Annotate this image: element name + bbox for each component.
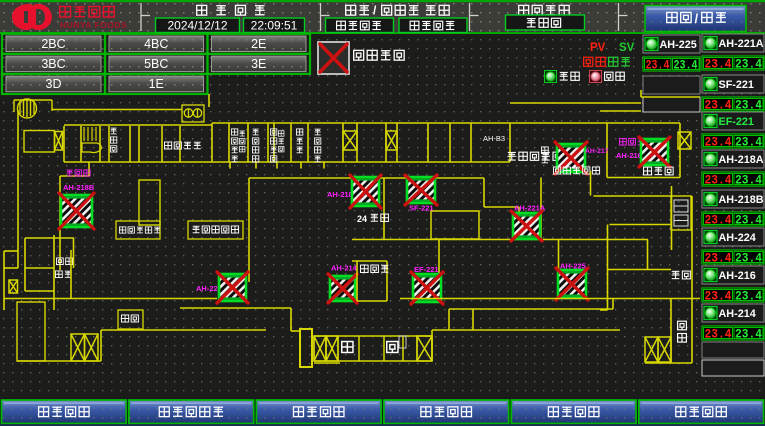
svg-text:2024/12/12: 2024/12/12: [167, 19, 227, 33]
svg-text:23.4: 23.4: [705, 136, 732, 150]
svg-text:23.4: 23.4: [735, 252, 762, 266]
svg-text:23.4: 23.4: [705, 290, 732, 304]
svg-text:23.4: 23.4: [735, 58, 762, 72]
svg-text:SV: SV: [619, 42, 635, 54]
svg-text:AH-218A: AH-218A: [719, 154, 764, 166]
svg-text:23.4: 23.4: [705, 328, 732, 342]
svg-text:4BC: 4BC: [144, 37, 168, 51]
svg-text:23.4: 23.4: [735, 328, 762, 342]
svg-text:AH-214: AH-214: [719, 308, 756, 320]
svg-text:EF-221: EF-221: [719, 116, 754, 128]
svg-text:SF-221: SF-221: [409, 204, 434, 213]
svg-text:23.4: 23.4: [705, 214, 732, 228]
svg-text:5BC: 5BC: [144, 57, 168, 71]
svg-text:23.4: 23.4: [674, 59, 698, 73]
svg-text:23.4: 23.4: [735, 174, 762, 188]
svg-text:23.4: 23.4: [735, 99, 762, 113]
svg-text:22:09:51: 22:09:51: [251, 19, 298, 33]
svg-text:23.4: 23.4: [735, 136, 762, 150]
svg-text:23.4: 23.4: [705, 174, 732, 188]
svg-text:3D: 3D: [46, 77, 62, 91]
svg-text:AH-214: AH-214: [331, 264, 358, 273]
svg-text:AH-216: AH-216: [616, 151, 642, 160]
svg-text:PV: PV: [590, 42, 606, 54]
svg-text:23.4: 23.4: [646, 59, 670, 73]
svg-text:23.4: 23.4: [705, 99, 732, 113]
svg-text:/: /: [695, 11, 699, 26]
svg-text:AH-218B: AH-218B: [719, 194, 764, 206]
svg-text:EF-221: EF-221: [414, 265, 439, 274]
svg-text:23.4: 23.4: [735, 290, 762, 304]
svg-text:2E: 2E: [251, 37, 266, 51]
svg-text:23.4: 23.4: [705, 58, 732, 72]
svg-text:24: 24: [357, 214, 367, 224]
svg-text:AH-225: AH-225: [660, 39, 697, 51]
svg-text:AH-218B: AH-218B: [63, 183, 95, 192]
svg-text:23.4: 23.4: [735, 214, 762, 228]
svg-text:AH-216: AH-216: [719, 270, 756, 282]
svg-text:3BC: 3BC: [41, 57, 65, 71]
svg-text:AH-B3: AH-B3: [483, 134, 505, 143]
svg-text:3E: 3E: [251, 57, 266, 71]
svg-text:AH-224: AH-224: [719, 232, 756, 244]
svg-text:2BC: 2BC: [41, 37, 65, 51]
svg-text:1E: 1E: [149, 77, 164, 91]
svg-text:23.4: 23.4: [705, 252, 732, 266]
svg-text:AH-217: AH-217: [585, 148, 609, 155]
svg-text:SF-221: SF-221: [719, 79, 754, 91]
svg-text:AH-221A: AH-221A: [719, 38, 764, 50]
svg-text:HUNYA FOODS: HUNYA FOODS: [60, 20, 127, 30]
